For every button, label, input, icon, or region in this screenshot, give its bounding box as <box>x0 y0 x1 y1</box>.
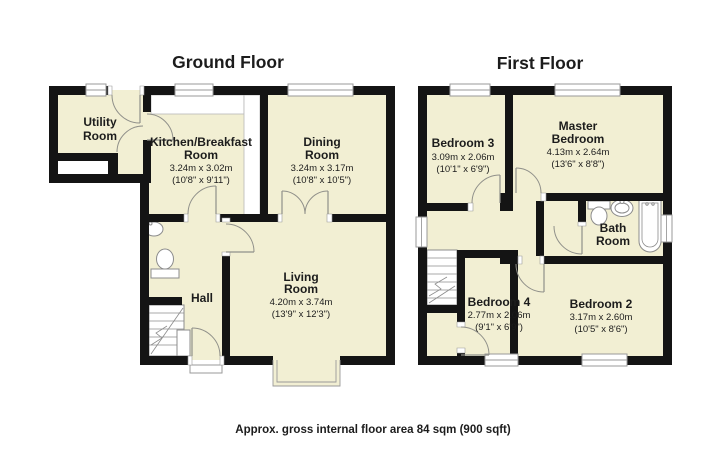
window <box>450 84 490 96</box>
kitchen-label2: Room <box>184 148 218 162</box>
bathtub-icon <box>639 199 661 252</box>
ground-floor-plan: Ground Floor <box>49 52 395 386</box>
bathroom-label2: Room <box>596 234 630 248</box>
floorplan-page: Ground Floor <box>0 0 719 468</box>
master-dims-metric: 4.13m x 2.64m <box>547 147 610 158</box>
kitchen-label: Kitchen/Breakfast <box>150 135 252 149</box>
first-floor-plan: First Floor <box>416 53 672 366</box>
utility-room-label: Utility <box>83 115 117 129</box>
dining-dims-metric: 3.24m x 3.17m <box>291 163 354 174</box>
window <box>661 215 672 242</box>
living-label2: Room <box>284 282 318 296</box>
living-dims-metric: 4.20m x 3.74m <box>270 297 333 308</box>
kitchen-dims-imperial: (10'8" x 9'11") <box>172 175 230 186</box>
basin-icon <box>611 200 633 217</box>
utility-recess <box>54 161 110 174</box>
master-dims-imperial: (13'6" x 8'8") <box>551 159 604 170</box>
dining-label: Dining <box>303 135 340 149</box>
window <box>175 84 213 96</box>
window <box>86 84 106 96</box>
master-bedroom-label: Master <box>559 119 598 133</box>
floorplan-drawing: Ground Floor <box>0 0 719 468</box>
bedroom3-dims-metric: 3.09m x 2.06m <box>432 152 495 163</box>
master-bedroom-label2: Bedroom <box>552 132 605 146</box>
utility-room-label2: Room <box>83 129 117 143</box>
dining-dims-imperial: (10'8" x 10'5") <box>293 175 351 186</box>
dining-label2: Room <box>305 148 339 162</box>
stairs-icon <box>149 305 190 356</box>
stairs-icon <box>427 250 457 305</box>
bay-window-area <box>273 352 340 386</box>
living-dims-imperial: (13'9" x 12'3") <box>272 309 330 320</box>
bedroom4-dims-imperial: (9'1" x 6'9") <box>475 322 523 333</box>
bedroom3-label: Bedroom 3 <box>432 136 495 150</box>
bedroom2-label: Bedroom 2 <box>570 297 633 311</box>
kitchen-dims-metric: 3.24m x 3.02m <box>170 163 233 174</box>
window <box>582 354 627 366</box>
hall-label: Hall <box>191 291 213 305</box>
bathroom-label: Bath <box>600 221 627 235</box>
bedroom2-dims-imperial: (10'5" x 8'6") <box>574 324 627 335</box>
floor-area-caption: Approx. gross internal floor area 84 sqm… <box>235 424 511 436</box>
window <box>288 84 353 96</box>
window <box>485 354 518 366</box>
bedroom4-label: Bedroom 4 <box>468 295 531 309</box>
bedroom3-dims-imperial: (10'1" x 6'9") <box>436 164 489 175</box>
ground-floor-title: Ground Floor <box>172 52 284 72</box>
window <box>416 217 427 247</box>
bedroom4-dims-metric: 2.77m x 2.06m <box>468 310 531 321</box>
window <box>555 84 620 96</box>
porch-step <box>190 365 222 373</box>
first-floor-title: First Floor <box>497 53 584 73</box>
bedroom2-dims-metric: 3.17m x 2.60m <box>570 312 633 323</box>
